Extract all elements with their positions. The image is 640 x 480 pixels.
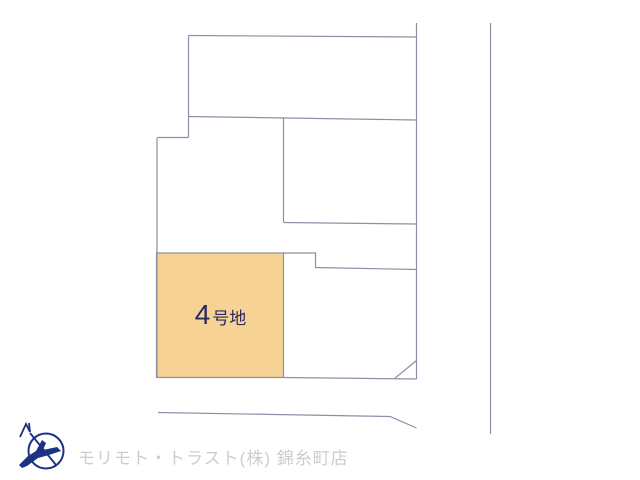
top-parcel-top-edge: [189, 36, 417, 38]
compass-bird-logo-icon: [16, 420, 74, 478]
top-parcel-bottom-edge: [189, 117, 417, 121]
company-name: モリモト・トラスト(株) 錦糸町店: [78, 444, 349, 469]
site-plan-page: 4号地 モリモト・トラスト(株) 錦糸町店: [0, 0, 640, 480]
bottom-parcel-bottom-edge: [284, 378, 417, 380]
notch-edge: [284, 253, 417, 270]
footer-brand: モリモト・トラスト(株) 錦糸町店: [16, 420, 349, 478]
parcel-map: [0, 0, 640, 480]
mid-parcel-bottom-edge: [284, 223, 417, 225]
corner-cut-diagonal: [394, 361, 417, 380]
highlighted-parcel-4: [157, 253, 284, 378]
